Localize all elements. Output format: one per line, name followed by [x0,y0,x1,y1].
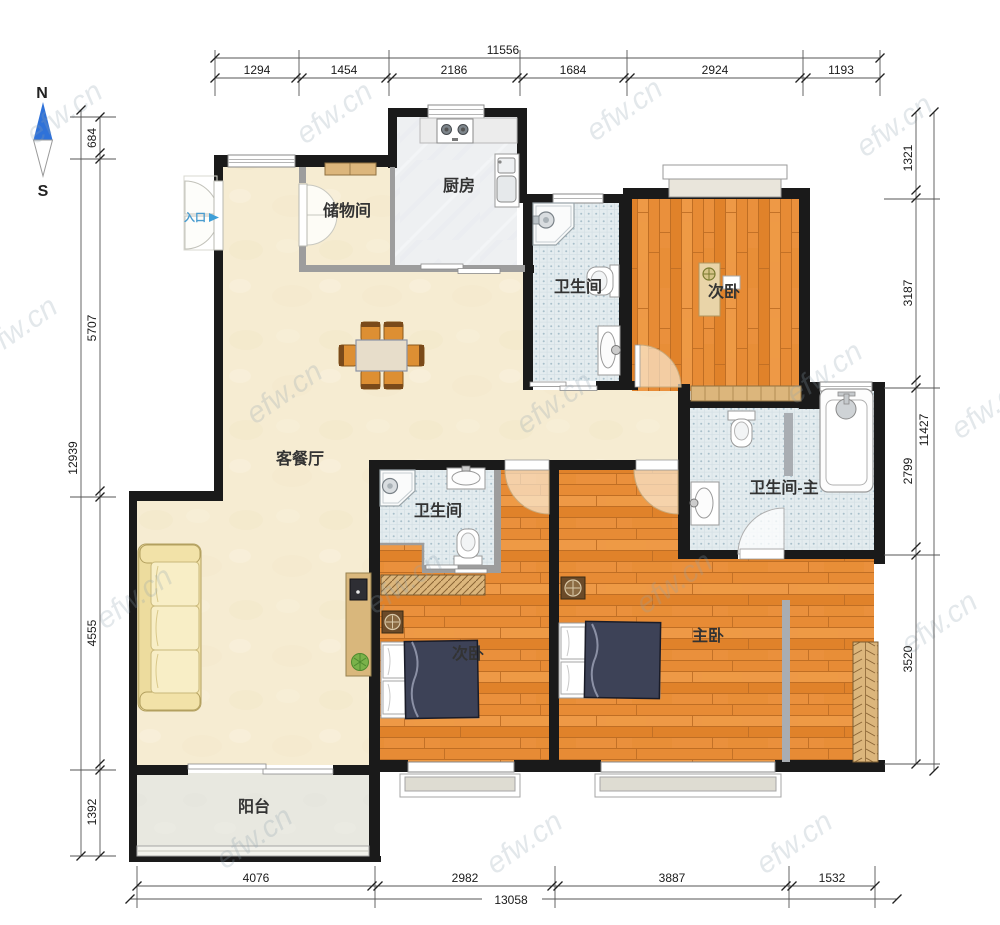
svg-text:4555: 4555 [85,619,99,646]
svg-text:2924: 2924 [702,63,729,77]
svg-text:S: S [38,183,49,200]
svg-text:卫生间: 卫生间 [554,277,602,296]
svg-text:客餐厅: 客餐厅 [276,449,324,468]
svg-text:1294: 1294 [244,63,271,77]
svg-text:1193: 1193 [828,63,854,77]
svg-text:主卧: 主卧 [692,626,724,645]
svg-text:13058: 13058 [494,893,528,907]
svg-text:1392: 1392 [85,798,99,825]
svg-text:2799: 2799 [901,457,915,484]
svg-text:1321: 1321 [901,144,915,171]
svg-text:入口: 入口 [184,211,206,224]
svg-text:储物间: 储物间 [322,201,371,220]
svg-text:11556: 11556 [487,43,520,57]
svg-text:11427: 11427 [917,413,931,446]
svg-text:2982: 2982 [452,871,479,885]
svg-text:5707: 5707 [85,314,99,341]
svg-text:N: N [36,85,48,102]
svg-text:684: 684 [85,128,99,148]
svg-text:3520: 3520 [901,645,915,672]
svg-text:1532: 1532 [819,871,846,885]
svg-text:卫生间: 卫生间 [414,501,462,520]
svg-text:1454: 1454 [331,63,358,77]
svg-text:3887: 3887 [659,871,686,885]
svg-text:12939: 12939 [66,441,80,475]
svg-text:次卧: 次卧 [708,282,740,301]
svg-text:卫生间-主: 卫生间-主 [749,478,818,497]
svg-text:3187: 3187 [901,279,915,306]
svg-text:4076: 4076 [243,871,270,885]
svg-text:厨房: 厨房 [443,176,475,195]
svg-text:1684: 1684 [560,63,587,77]
svg-text:次卧: 次卧 [452,644,484,663]
svg-text:2186: 2186 [441,63,468,77]
